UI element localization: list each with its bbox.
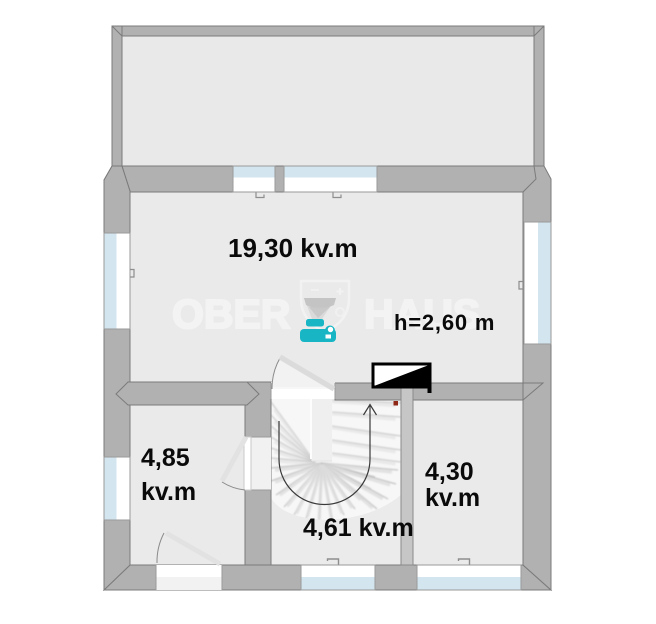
svg-text:OBER: OBER bbox=[172, 291, 290, 337]
svg-text:kv.m: kv.m bbox=[141, 478, 196, 506]
svg-text:4,30: 4,30 bbox=[425, 458, 474, 486]
svg-text:h=2,60 m: h=2,60 m bbox=[394, 310, 495, 335]
svg-text:4,61 kv.m: 4,61 kv.m bbox=[303, 514, 414, 542]
svg-text:4,85: 4,85 bbox=[141, 444, 190, 472]
svg-text:19,30 kv.m: 19,30 kv.m bbox=[228, 233, 358, 263]
svg-text:kv.m: kv.m bbox=[425, 484, 480, 512]
